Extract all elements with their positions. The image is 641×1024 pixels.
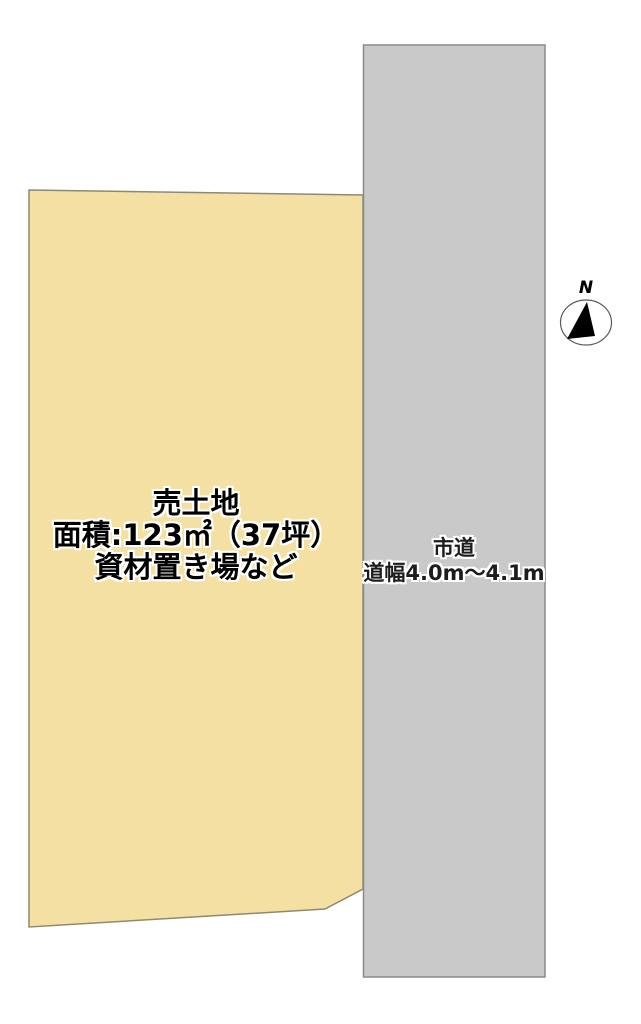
north-arrow-icon — [561, 300, 612, 345]
plot-plan-canvas: 売土地 面積:123㎡（37坪） 資材置き場など 市道 道幅4.0m～4.1m … — [0, 0, 641, 1024]
north-letter: N — [560, 278, 612, 298]
parcel-area: 面積:123㎡（37坪） — [29, 519, 363, 551]
road-label: 市道 道幅4.0m～4.1m — [363, 536, 545, 586]
road-shape — [364, 45, 546, 977]
parcel-title: 売土地 — [29, 487, 363, 519]
parcel-note: 資材置き場など — [29, 551, 363, 583]
road-width-range: 道幅4.0m～4.1m — [363, 561, 545, 586]
road-name: 市道 — [363, 536, 545, 561]
parcel-label: 売土地 面積:123㎡（37坪） 資材置き場など — [29, 487, 363, 583]
